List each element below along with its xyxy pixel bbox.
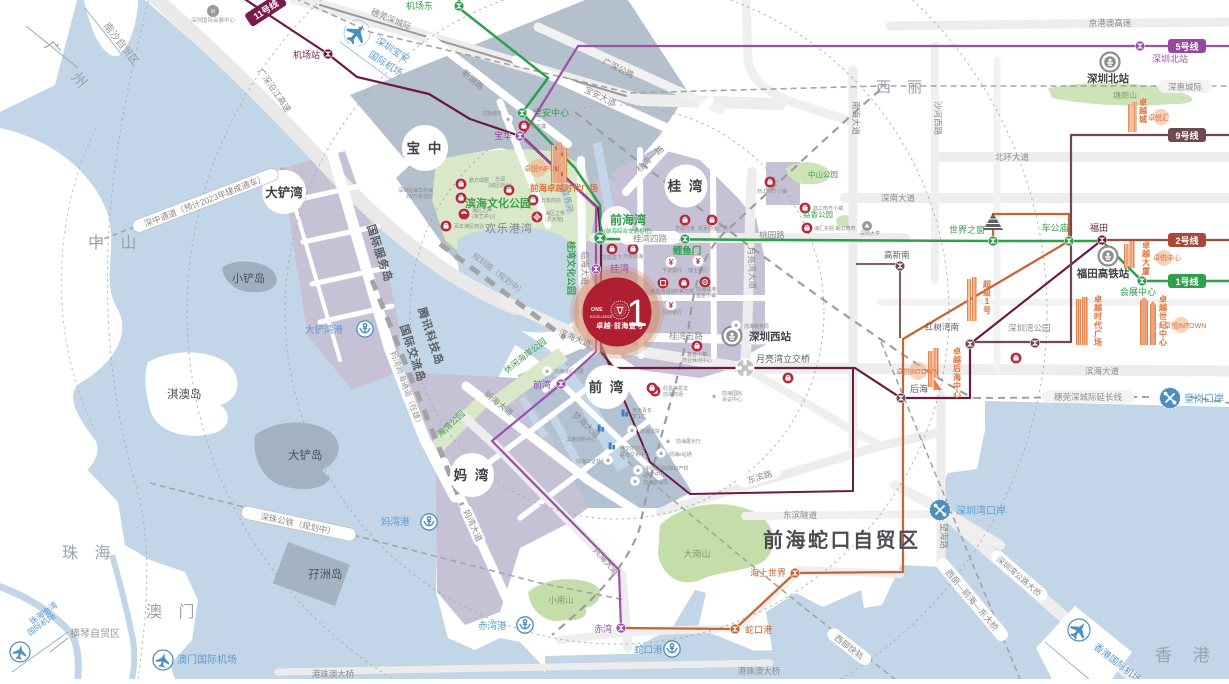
svg-text:5号线: 5号线 [1175, 41, 1198, 52]
svg-text:前海城汇大厦: 前海城汇大厦 [554, 368, 584, 375]
svg-text:澳门国际机场: 澳门国际机场 [177, 653, 237, 666]
svg-text:前海公证处: 前海公证处 [576, 458, 601, 465]
svg-text:卓越大厦: 卓越大厦 [1141, 240, 1151, 276]
svg-text:竞未青年: 竞未青年 [632, 407, 652, 414]
svg-text:深圳前海华侨城: 深圳前海华侨城 [398, 187, 433, 194]
svg-text:前湾: 前湾 [533, 379, 551, 390]
svg-text:ONE: ONE [591, 307, 603, 313]
svg-text:月亮湾立交桥: 月亮湾立交桥 [756, 353, 810, 364]
svg-text:港珠澳大桥: 港珠澳大桥 [312, 669, 355, 679]
svg-text:宝能直下: 宝能直下 [602, 254, 622, 261]
svg-text:中 山: 中 山 [88, 234, 142, 252]
svg-text:港珠澳大桥: 港珠澳大桥 [738, 666, 781, 676]
svg-text:前海蛇口自贸区: 前海蛇口自贸区 [763, 528, 921, 552]
svg-text:皇岗口岸: 皇岗口岸 [1184, 392, 1224, 405]
svg-text:红星美凯龙: 红星美凯龙 [663, 385, 688, 392]
svg-text:香 港: 香 港 [1155, 646, 1218, 665]
svg-text:港交所前海: 港交所前海 [620, 445, 645, 452]
svg-text:M: M [211, 9, 215, 15]
svg-text:沙河西路: 沙河西路 [933, 101, 943, 136]
svg-text:前海湾: 前海湾 [610, 212, 646, 227]
svg-text:前海管理局: 前海管理局 [643, 479, 668, 486]
svg-text:9号线: 9号线 [1175, 130, 1198, 141]
svg-text:海上世界: 海上世界 [750, 567, 786, 578]
svg-text:京方廉: 京方廉 [531, 123, 546, 130]
svg-text:赤湾: 赤湾 [594, 623, 612, 634]
svg-text:EXCELLENCE: EXCELLENCE [590, 315, 613, 319]
svg-text:红树湾南: 红树湾南 [925, 322, 959, 332]
svg-text:蛇口港: 蛇口港 [745, 624, 772, 635]
svg-text:机场站: 机场站 [293, 49, 320, 60]
svg-text:卓越时代广场: 卓越时代广场 [1093, 294, 1103, 347]
svg-text:基金小镇: 基金小镇 [687, 351, 707, 358]
svg-text:赤湾港: 赤湾港 [478, 620, 507, 632]
svg-text:定军前鱼广场: 定军前鱼广场 [698, 225, 728, 232]
svg-text:卓悦INTOWN: 卓悦INTOWN [1164, 321, 1206, 330]
svg-text:后海: 后海 [910, 383, 928, 394]
svg-text:保护中心: 保护中心 [645, 471, 665, 478]
svg-text:会议中心: 会议中心 [722, 396, 742, 403]
svg-text:百年演区商业: 百年演区商业 [454, 223, 484, 230]
svg-text:宝安中心: 宝安中心 [533, 107, 569, 118]
svg-text:1号线: 1号线 [1175, 276, 1198, 287]
svg-text:大铲岛: 大铲岛 [288, 448, 323, 462]
svg-text:西 丽: 西 丽 [876, 79, 928, 96]
svg-text:珠 海: 珠 海 [62, 544, 116, 562]
svg-text:横琴自贸区: 横琴自贸区 [70, 627, 120, 640]
svg-text:南海大道: 南海大道 [851, 101, 861, 136]
svg-text:海区之男: 海区之男 [545, 210, 565, 217]
svg-text:(演艺中心): (演艺中心) [472, 213, 496, 220]
svg-text:联合交易中心: 联合交易中心 [620, 451, 650, 458]
svg-text:福田高铁站: 福田高铁站 [1076, 267, 1130, 280]
svg-text:前海展示厅: 前海展示厅 [676, 438, 701, 445]
svg-text:卓越·前海壹号: 卓越·前海壹号 [596, 321, 644, 330]
svg-text:深圳湾公园: 深圳湾公园 [1008, 323, 1051, 333]
svg-text:商工南齐小镇: 商工南齐小镇 [813, 205, 843, 212]
svg-text:机场东: 机场东 [406, 0, 433, 11]
svg-text:前海深港: 前海深港 [696, 286, 716, 293]
svg-text:桂湾五路: 桂湾五路 [669, 331, 704, 341]
svg-text:塘朗山: 塘朗山 [1113, 90, 1137, 100]
svg-text:前 湾: 前 湾 [589, 379, 626, 395]
svg-text:前海法院: 前海法院 [640, 428, 660, 435]
svg-text:大铲湾港: 大铲湾港 [305, 324, 344, 336]
svg-text:宁波银行: 宁波银行 [662, 267, 682, 274]
svg-text:小铲岛: 小铲岛 [232, 271, 265, 285]
svg-text:蛇口港: 蛇口港 [634, 644, 663, 656]
svg-text:鹏方颂居: 鹏方颂居 [469, 177, 489, 184]
svg-text:滨港创新中心: 滨港创新中心 [566, 436, 596, 443]
svg-text:宝 中: 宝 中 [407, 140, 444, 156]
svg-text:东滨隧道: 东滨隧道 [783, 510, 818, 520]
svg-text:卓悦汇: 卓悦汇 [1148, 113, 1169, 122]
svg-text:超级1号: 超级1号 [982, 279, 992, 315]
svg-text:望海路: 望海路 [939, 523, 949, 549]
svg-text:商业休闲中心: 商业休闲中心 [682, 357, 712, 364]
svg-text:澳 门: 澳 门 [146, 603, 200, 621]
svg-text:海区之声: 海区之声 [472, 207, 492, 214]
svg-text:桂 湾: 桂 湾 [667, 178, 705, 194]
svg-text:JW万豪酒店: JW万豪酒店 [406, 193, 433, 200]
svg-text:前海e站通: 前海e站通 [669, 451, 692, 458]
svg-text:中国(深圳)知识产权: 中国(深圳)知识产权 [645, 465, 688, 472]
svg-text:孖洲岛: 孖洲岛 [308, 567, 343, 581]
svg-text:穗莞深城际延长线: 穗莞深城际延长线 [1054, 392, 1123, 402]
svg-text:宝华: 宝华 [494, 130, 512, 141]
svg-text:招商银行: 招商银行 [662, 309, 682, 316]
svg-text:前海商场: 前海商场 [663, 391, 683, 398]
svg-text:(城区商业): (城区商业) [488, 182, 512, 189]
svg-text:前海卓越时代广场: 前海卓越时代广场 [530, 183, 599, 193]
svg-text:小南山: 小南山 [548, 595, 574, 605]
svg-text:深圳大学: 深圳大学 [860, 230, 880, 237]
svg-text:深惠城际: 深惠城际 [1168, 82, 1203, 92]
svg-text:福田: 福田 [1090, 222, 1108, 233]
svg-text:北环大道: 北环大道 [995, 152, 1030, 162]
svg-text:卓越城: 卓越城 [1138, 97, 1148, 124]
svg-text:前海国际: 前海国际 [722, 390, 742, 397]
svg-text:桂湾: 桂湾 [610, 263, 630, 275]
svg-text:滨海大道: 滨海大道 [1085, 366, 1120, 376]
svg-text:桂湾四路: 桂湾四路 [633, 234, 668, 244]
svg-text:桃园路: 桃园路 [759, 230, 785, 240]
svg-text:中山公园: 中山公园 [808, 169, 838, 179]
svg-text:2号线: 2号线 [1175, 235, 1198, 246]
svg-text:(爱天地): (爱天地) [545, 216, 564, 223]
svg-text:华润万家: 华润万家 [675, 225, 695, 232]
svg-text:瑞士银行: 瑞士银行 [688, 267, 708, 274]
svg-text:商工商齐小镇: 商工商齐小镇 [757, 188, 787, 195]
svg-text:鲤鱼门: 鲤鱼门 [672, 245, 702, 257]
svg-text:(前海综合交通枢纽): (前海综合交通枢纽) [604, 227, 652, 235]
svg-text:妈湾港: 妈湾港 [381, 516, 410, 528]
svg-text:会展中心: 会展中心 [1120, 286, 1156, 297]
svg-text:深圳北站: 深圳北站 [1087, 72, 1129, 85]
svg-text:前海税务局: 前海税务局 [744, 323, 769, 330]
svg-text:世界之窗: 世界之窗 [949, 224, 985, 235]
svg-text:深圳湾口岸: 深圳湾口岸 [956, 504, 1006, 517]
svg-text:海汇实验·朗云教育: 海汇实验·朗云教育 [814, 225, 856, 232]
svg-text:深圳北站: 深圳北站 [1152, 53, 1188, 64]
svg-text:宝能城市: 宝能城市 [482, 110, 502, 117]
svg-text:深南大道: 深南大道 [881, 193, 916, 203]
svg-text:京港澳高速: 京港澳高速 [1089, 18, 1132, 28]
svg-text:中美万邦: 中美万邦 [674, 288, 694, 295]
svg-text:深圳国际会展中心: 深圳国际会展中心 [191, 16, 236, 24]
svg-text:深圳西站: 深圳西站 [749, 330, 791, 343]
svg-text:英蓝格酒店: 英蓝格酒店 [650, 288, 675, 295]
svg-text:卓越后海中心: 卓越后海中心 [952, 346, 962, 399]
svg-text:梦工厂: 梦工厂 [632, 414, 647, 420]
svg-text:基金小镇: 基金小镇 [696, 292, 716, 299]
svg-text:淇澳岛: 淇澳岛 [167, 387, 202, 401]
svg-text:万象商店: 万象商店 [541, 197, 561, 204]
svg-text:卓悦INTOWN: 卓悦INTOWN [896, 367, 938, 376]
svg-text:桂湾文化公园: 桂湾文化公园 [566, 240, 577, 295]
svg-text:卓悦INFUN: 卓悦INFUN [524, 164, 559, 173]
svg-text:华润: 华润 [495, 176, 505, 183]
svg-text:大南山: 大南山 [683, 548, 710, 559]
svg-text:临海大道: 临海大道 [580, 251, 590, 286]
svg-text:车公庙: 车公庙 [1041, 222, 1068, 233]
svg-text:妈 湾: 妈 湾 [454, 467, 491, 483]
svg-text:卓越世纪中心: 卓越世纪中心 [1158, 294, 1168, 347]
svg-text:大铲湾: 大铲湾 [265, 185, 303, 200]
svg-text:高新南: 高新南 [884, 250, 910, 260]
svg-text:欢乐港湾: 欢乐港湾 [485, 221, 533, 235]
svg-text:卓悦中心: 卓悦中心 [1153, 253, 1181, 262]
svg-text:万象前海: 万象前海 [623, 253, 643, 260]
